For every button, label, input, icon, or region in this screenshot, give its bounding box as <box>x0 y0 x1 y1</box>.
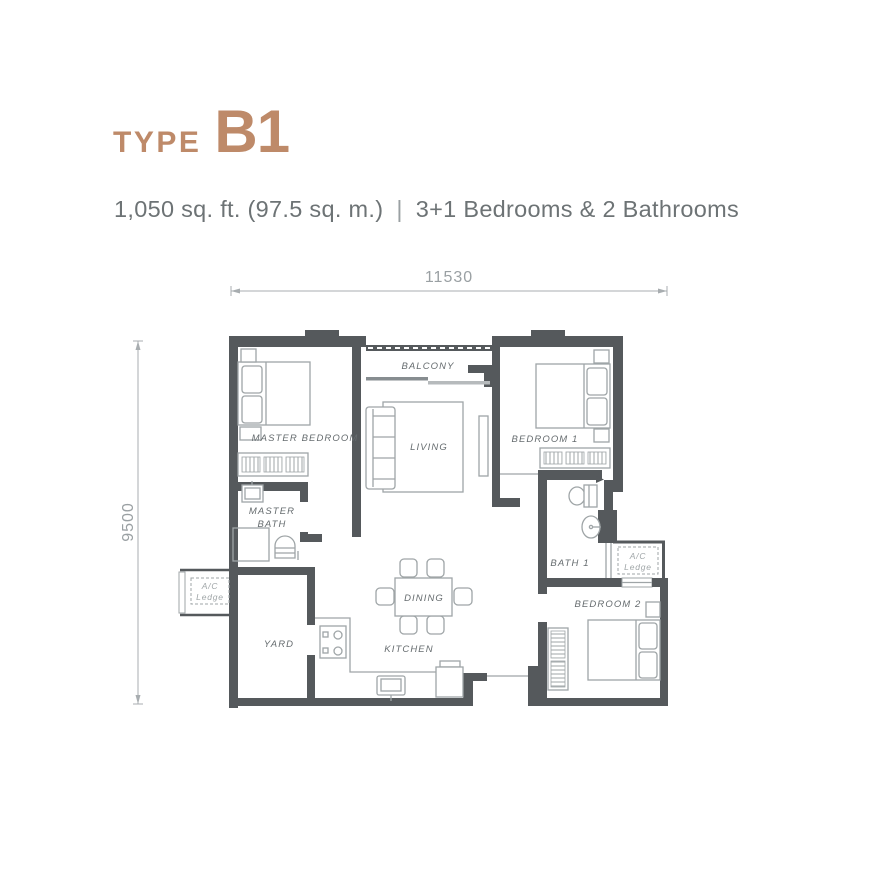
tv-console-icon <box>479 416 488 476</box>
room-bedroom2: BEDROOM 2 <box>548 599 660 690</box>
floor-plan: 11530 9500 <box>0 0 877 879</box>
height-dimension: 9500 <box>120 341 143 704</box>
kitchen-label: KITCHEN <box>384 644 433 655</box>
shower-icon <box>233 528 269 561</box>
wardrobe-icon <box>540 448 610 468</box>
bedside-table-icon <box>241 349 256 362</box>
bedside-table-icon <box>594 350 609 363</box>
double-bed-icon <box>536 364 610 428</box>
room-living: LIVING <box>366 402 488 492</box>
ac-ledge-left: A/C Ledge <box>191 578 229 604</box>
width-dimension: 11530 <box>231 269 667 296</box>
ac-ledge-right: A/C Ledge <box>618 547 658 574</box>
room-master-bedroom: MASTER BEDROOM <box>238 349 358 476</box>
yard-label: YARD <box>264 639 294 650</box>
bedside-table-icon <box>594 429 609 442</box>
double-bed-icon <box>588 620 660 680</box>
toilet-icon <box>569 485 597 507</box>
bedroom1-label: BEDROOM 1 <box>512 434 579 445</box>
sofa-icon <box>366 407 395 489</box>
room-dining: DINING <box>376 559 472 634</box>
double-bed-icon <box>238 362 310 425</box>
room-master-bath: MASTER BATH <box>233 481 298 561</box>
width-dimension-label: 11530 <box>425 269 473 286</box>
toilet-icon <box>275 536 298 560</box>
ac-ledge-label: Ledge <box>196 592 224 602</box>
kitchen-sink-icon <box>377 676 405 701</box>
room-bedroom1: BEDROOM 1 <box>512 350 610 468</box>
room-yard: YARD <box>264 639 294 650</box>
balcony-label: BALCONY <box>401 361 454 372</box>
bedside-table-icon <box>646 602 660 617</box>
dining-label: DINING <box>404 593 444 604</box>
wardrobe-icon <box>548 628 568 690</box>
master-bath-label: BATH <box>257 519 286 530</box>
master-bath-label: MASTER <box>249 506 295 517</box>
sink-icon <box>582 516 601 538</box>
room-bath1: BATH 1 <box>550 476 604 569</box>
stove-icon <box>320 626 346 658</box>
bedroom2-label: BEDROOM 2 <box>575 599 642 610</box>
sliding-door-icon <box>428 381 490 385</box>
ac-ledge-label: A/C <box>629 551 647 561</box>
living-label: LIVING <box>410 442 448 453</box>
ac-ledge-label: Ledge <box>624 562 652 572</box>
height-dimension-label: 9500 <box>120 502 137 542</box>
master-bedroom-label: MASTER BEDROOM <box>252 433 359 444</box>
sliding-door-icon <box>366 377 428 381</box>
fridge-icon <box>436 661 463 697</box>
ac-ledge-label: A/C <box>201 581 219 591</box>
bath1-label: BATH 1 <box>550 558 589 569</box>
wardrobe-icon <box>238 453 308 476</box>
